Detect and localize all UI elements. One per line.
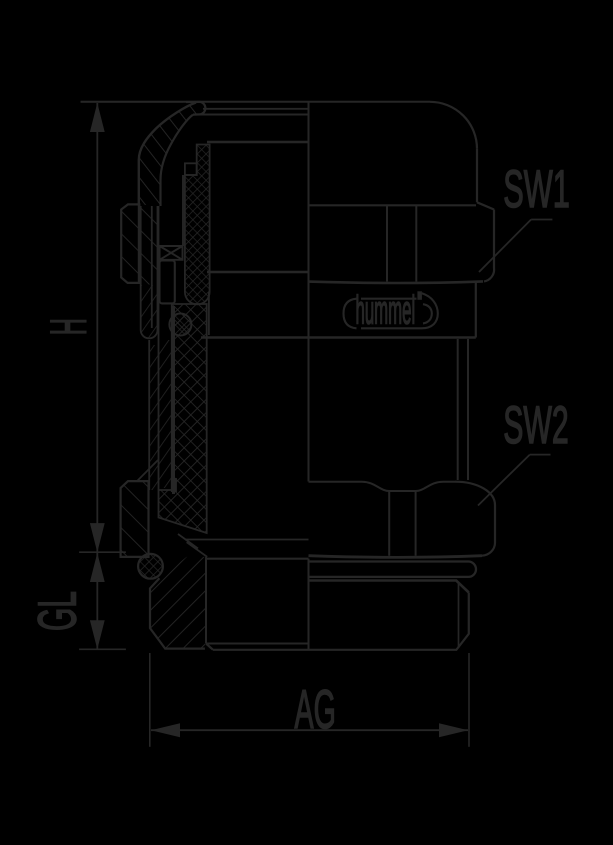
svg-text:SW2: SW2: [503, 397, 568, 456]
svg-text:hummel: hummel: [356, 290, 416, 333]
svg-text:GL: GL: [29, 591, 88, 631]
svg-text:H: H: [41, 318, 98, 335]
svg-text:SW1: SW1: [503, 161, 570, 220]
svg-text:AG: AG: [295, 679, 336, 740]
